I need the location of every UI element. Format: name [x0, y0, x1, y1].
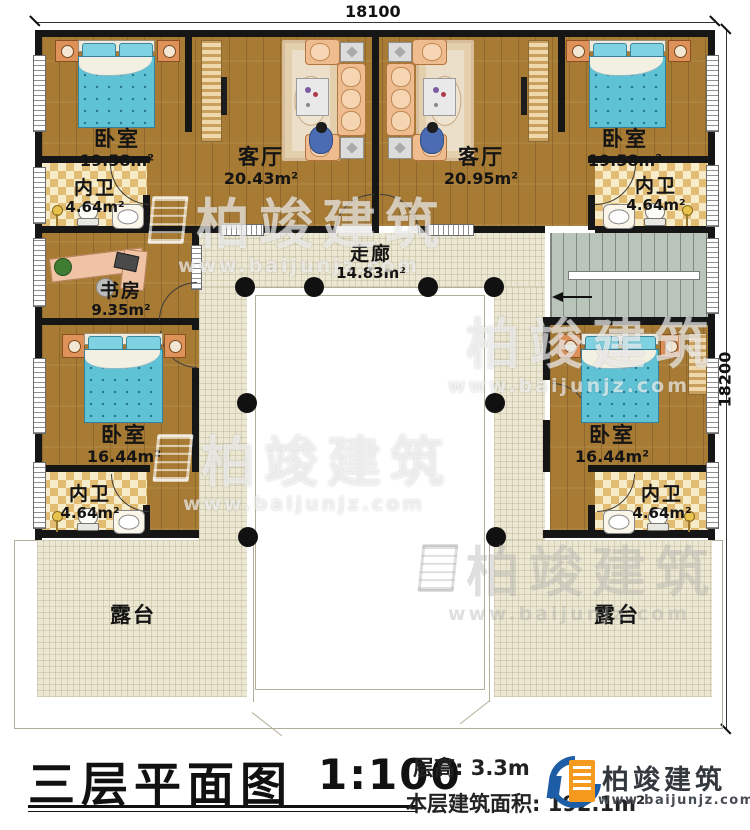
terrace-outline: [14, 540, 15, 729]
room-label-corridor: 走廊14.83m²: [316, 244, 426, 282]
title-underline-thin: [28, 811, 416, 812]
stairs-handrail: [568, 271, 700, 280]
tv-cabinet-icon: [201, 40, 222, 142]
bed-icon: [581, 333, 659, 423]
bed-icon: [84, 333, 163, 423]
nightstand-icon: [62, 334, 85, 358]
window-icon: [427, 224, 474, 236]
room-label-bedroom-mr: 卧室16.44m²: [557, 424, 667, 465]
wall-corridor-top: [35, 226, 335, 233]
window-icon: [706, 55, 719, 132]
tv-icon: [221, 77, 227, 115]
wall: [543, 325, 550, 380]
terrace-outline: [489, 540, 490, 702]
sofa-icon: [337, 63, 366, 136]
room-label-living-tl: 客厅20.43m²: [206, 146, 316, 187]
window-icon: [33, 358, 46, 434]
terrace-outline-diagonal: [460, 700, 491, 724]
column: [486, 527, 506, 547]
courtyard-void: [255, 295, 485, 690]
bed-icon: [78, 40, 155, 128]
coffee-table-icon: [423, 78, 456, 116]
stairs-arrow-tail: [562, 296, 592, 298]
room-label-bath-tl: 内卫4.64m²: [45, 178, 145, 216]
terrace-outline: [14, 728, 723, 729]
wall-top: [35, 30, 715, 37]
tv-icon: [521, 77, 527, 115]
side-table-icon: [340, 42, 364, 62]
sofa-icon: [386, 63, 415, 136]
brand-name: 柏竣建筑: [602, 758, 726, 797]
nightstand-icon: [55, 40, 79, 62]
title-block: 三层平面图 1:100 层高: 3.3m 本层建筑面积: 192.1m² 柏竣建…: [0, 744, 750, 830]
armchair-icon: [412, 39, 447, 65]
column: [485, 393, 505, 413]
room-label-terrace-right: 露台: [567, 604, 667, 628]
nightstand-icon: [660, 334, 681, 358]
dimension-tick: [709, 15, 720, 26]
side-table-icon: [388, 137, 412, 159]
terrace-outline-diagonal: [252, 712, 283, 736]
nightstand-icon: [668, 40, 691, 62]
wall: [192, 368, 199, 472]
nightstand-icon: [164, 334, 186, 358]
wall: [192, 320, 199, 330]
courtyard-edge: [247, 287, 494, 288]
bed-icon: [589, 40, 666, 128]
nightstand-icon: [558, 334, 581, 358]
wall: [588, 465, 708, 472]
column: [238, 527, 258, 547]
floor-plan-page: 18100 18200: [0, 0, 750, 830]
wall: [42, 465, 150, 472]
dimension-top-label: 18100: [345, 2, 401, 21]
window-icon: [706, 165, 719, 227]
column: [237, 393, 257, 413]
column: [235, 277, 255, 297]
dimension-tick: [29, 15, 40, 26]
window-icon: [706, 238, 719, 314]
room-label-study: 书房9.35m²: [66, 281, 176, 319]
room-label-bedroom-tr: 卧室19.58m²: [570, 128, 680, 169]
room-label-bath-br: 内卫4.64m²: [612, 484, 712, 522]
wall-stairs-bottom: [543, 317, 708, 325]
wall: [588, 195, 595, 230]
coffee-table-icon: [296, 78, 329, 116]
side-table-icon: [388, 42, 412, 62]
wall-bedroom-tr: [558, 37, 565, 132]
wardrobe-icon: [688, 333, 707, 395]
terrace-outline: [722, 540, 723, 729]
room-label-living-tr: 客厅20.95m²: [426, 146, 536, 187]
room-label-bath-bl: 内卫4.64m²: [40, 484, 140, 522]
terrace-outline: [14, 540, 37, 541]
terrace-outline: [712, 540, 722, 541]
column: [484, 277, 504, 297]
room-label-bath-tr: 内卫4.64m²: [606, 176, 706, 214]
terrace-outline: [253, 540, 254, 702]
wall: [543, 420, 550, 472]
side-table-icon: [340, 137, 364, 159]
window-icon: [706, 358, 719, 434]
floor-height-label: 层高: 3.3m: [413, 752, 530, 782]
room-label-terrace-left: 露台: [83, 604, 183, 628]
window-icon: [33, 238, 46, 307]
tv-cabinet-icon: [528, 40, 549, 142]
corridor-right: [494, 287, 545, 540]
window-icon: [220, 224, 264, 236]
room-label-bedroom-tl: 卧室19.58m²: [62, 128, 172, 169]
plant-icon: [54, 258, 72, 276]
brand-url: www.baijunjz.com: [598, 793, 750, 808]
brand-logo-icon: [545, 752, 603, 814]
corridor-left: [199, 287, 247, 540]
armchair-icon: [305, 39, 340, 65]
nightstand-icon: [566, 40, 590, 62]
dimension-top-line: [35, 22, 715, 23]
stairs-edge: [551, 233, 552, 317]
room-label-bedroom-ml: 卧室16.44m²: [69, 424, 179, 465]
wall-bedroom-tl: [185, 37, 192, 132]
window-icon: [33, 55, 46, 132]
title-underline: [28, 805, 416, 808]
nightstand-icon: [157, 40, 180, 62]
